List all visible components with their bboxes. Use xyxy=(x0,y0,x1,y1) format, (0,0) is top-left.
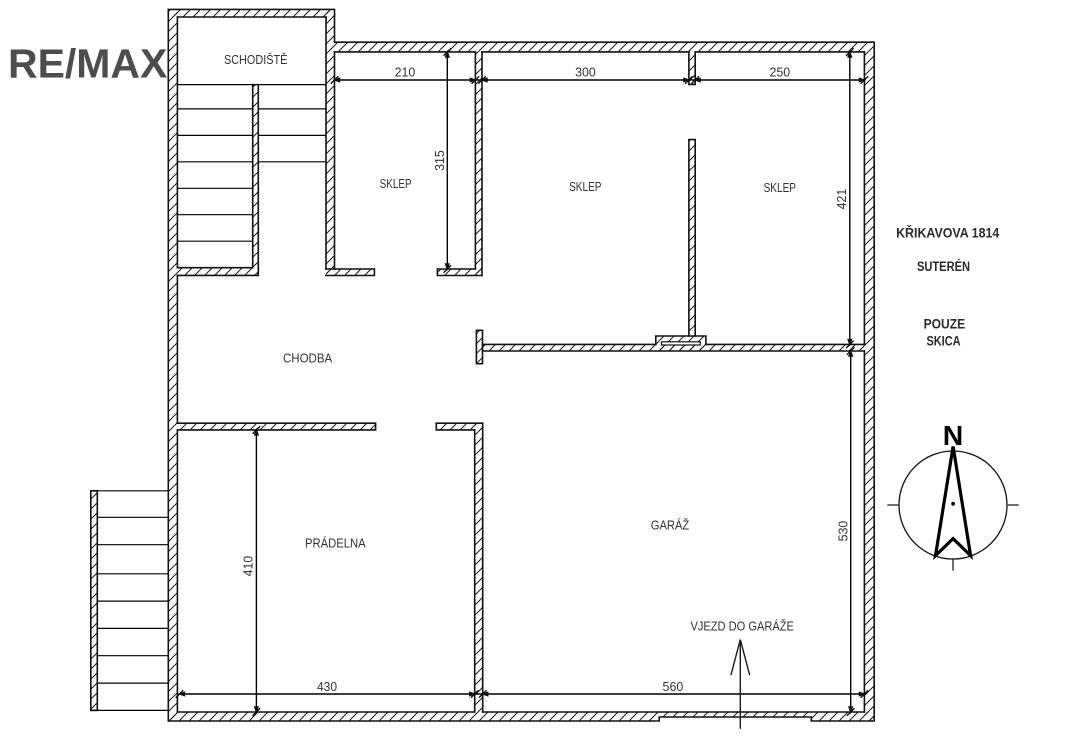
svg-text:SUTERÉN: SUTERÉN xyxy=(917,259,970,274)
svg-text:421: 421 xyxy=(834,189,849,210)
svg-text:250: 250 xyxy=(769,65,790,80)
svg-text:GARÁŽ: GARÁŽ xyxy=(651,518,690,533)
svg-text:530: 530 xyxy=(836,521,851,542)
svg-text:SKLEP: SKLEP xyxy=(569,179,601,194)
svg-text:SKICA: SKICA xyxy=(926,334,960,349)
svg-text:210: 210 xyxy=(395,65,416,80)
svg-text:SKLEP: SKLEP xyxy=(764,180,796,195)
svg-text:RE/MAX: RE/MAX xyxy=(8,41,168,87)
svg-text:PRÁDELNA: PRÁDELNA xyxy=(305,536,366,551)
svg-text:N: N xyxy=(943,420,964,451)
svg-text:315: 315 xyxy=(432,150,447,171)
svg-text:CHODBA: CHODBA xyxy=(283,351,333,366)
svg-text:300: 300 xyxy=(575,65,596,80)
svg-text:KŘIKAVOVA 1814: KŘIKAVOVA 1814 xyxy=(896,226,1000,241)
svg-text:SCHODIŠTĚ: SCHODIŠTĚ xyxy=(224,52,288,67)
svg-text:SKLEP: SKLEP xyxy=(380,176,412,191)
svg-text:410: 410 xyxy=(241,556,256,577)
svg-text:560: 560 xyxy=(663,679,684,694)
svg-text:VJEZD DO GARÁŽE: VJEZD DO GARÁŽE xyxy=(690,619,794,634)
svg-text:POUZE: POUZE xyxy=(924,317,966,332)
svg-text:430: 430 xyxy=(317,679,337,694)
